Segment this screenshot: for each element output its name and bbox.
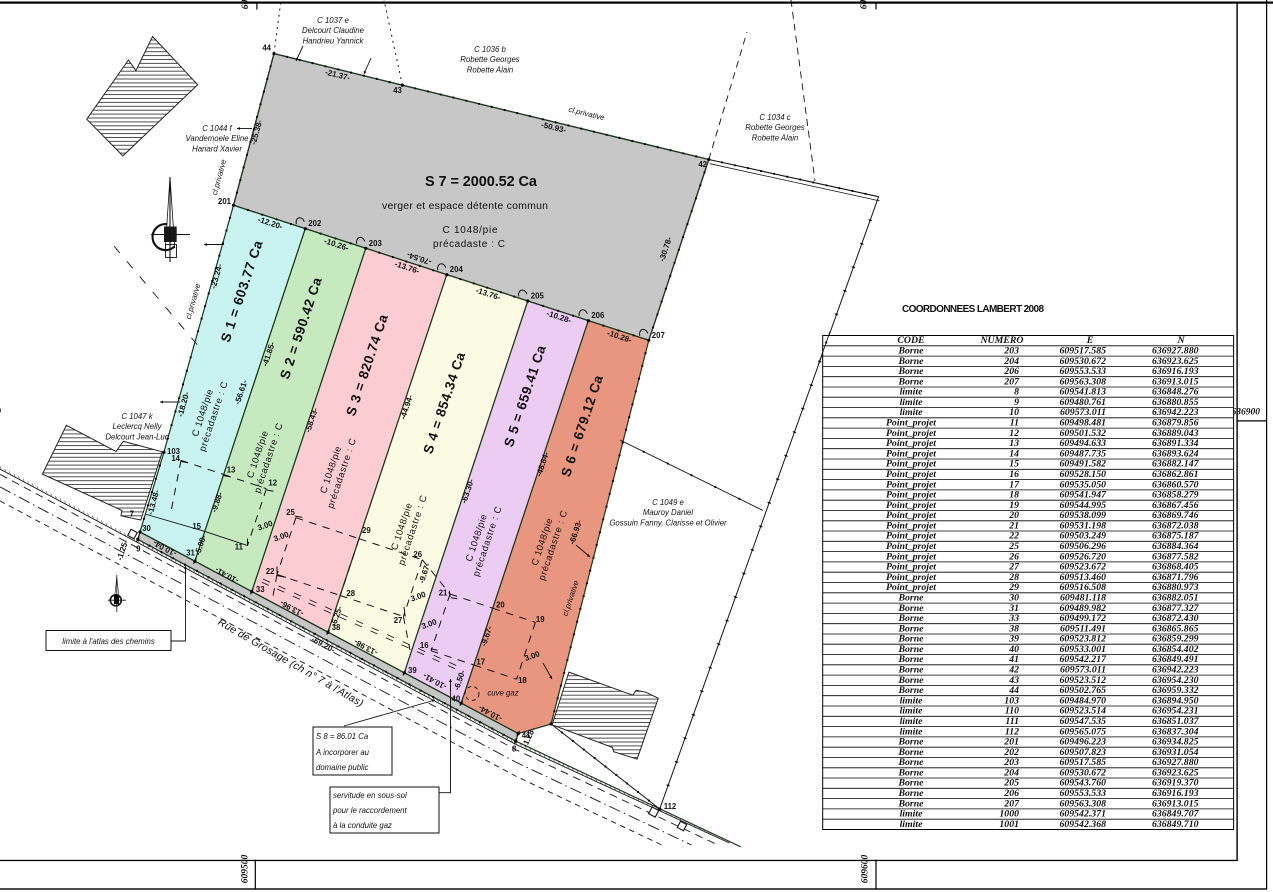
svg-text:28: 28 (346, 589, 355, 598)
svg-text:43: 43 (393, 86, 402, 95)
svg-text:cuve gaz: cuve gaz (487, 689, 518, 698)
svg-text:limite à l'atlas des chemins: limite à l'atlas des chemins (62, 637, 155, 646)
svg-text:Hanard Xavier: Hanard Xavier (192, 144, 242, 153)
svg-text:609500: 609500 (241, 855, 251, 884)
svg-text:C 1044 f: C 1044 f (202, 124, 232, 133)
svg-text:Robette Alain: Robette Alain (752, 133, 799, 142)
svg-text:201: 201 (218, 197, 232, 206)
svg-text:205: 205 (531, 292, 545, 301)
svg-text:18: 18 (518, 676, 527, 685)
svg-text:636849.710: 636849.710 (1152, 819, 1199, 830)
svg-text:30: 30 (142, 524, 151, 533)
svg-text:14: 14 (171, 454, 180, 463)
svg-text:26: 26 (413, 550, 422, 559)
svg-text:20: 20 (496, 600, 505, 609)
svg-text:pour le raccordement: pour le raccordement (332, 806, 408, 815)
svg-text:1001: 1001 (999, 819, 1019, 830)
svg-text:servitude en sous-sol: servitude en sous-sol (333, 791, 407, 800)
svg-text:42: 42 (698, 160, 707, 169)
svg-text:112: 112 (664, 802, 677, 811)
svg-text:207: 207 (652, 331, 665, 340)
svg-text:206: 206 (591, 311, 605, 320)
svg-text:12: 12 (268, 479, 277, 488)
svg-text:17: 17 (476, 658, 485, 667)
svg-text:202: 202 (308, 219, 322, 228)
svg-text:A incorporer au: A incorporer au (315, 748, 370, 757)
svg-text:9: 9 (136, 545, 141, 554)
svg-text:7: 7 (130, 510, 134, 519)
svg-text:Handrieu Yannick: Handrieu Yannick (303, 36, 365, 45)
svg-text:C 1048/pie: C 1048/pie (443, 225, 498, 236)
svg-text:8: 8 (512, 745, 517, 754)
svg-text:Delcourt Jean-Luc: Delcourt Jean-Luc (105, 432, 168, 441)
svg-text:Leclercq Nelly: Leclercq Nelly (113, 422, 163, 431)
svg-text:22: 22 (266, 567, 275, 576)
svg-text:Gossuin Fanny, Clarisse et Oli: Gossuin Fanny, Clarisse et Olivier (609, 518, 727, 527)
svg-text:39: 39 (408, 666, 417, 675)
svg-text:C 1037 e: C 1037 e (317, 16, 349, 25)
svg-text:609500: 609500 (241, 0, 251, 9)
svg-text:13: 13 (227, 466, 236, 475)
svg-text:33: 33 (256, 585, 265, 594)
svg-text:C 1036 b: C 1036 b (474, 45, 506, 54)
svg-text:16: 16 (420, 641, 429, 650)
svg-text:C 1049 e: C 1049 e (652, 498, 684, 507)
svg-text:21: 21 (439, 589, 448, 598)
svg-text:Delcourt Claudine: Delcourt Claudine (302, 26, 365, 35)
svg-text:limite: limite (900, 819, 924, 830)
svg-text:Robette Alain: Robette Alain (467, 65, 514, 74)
svg-text:précadaste : C: précadaste : C (433, 239, 505, 250)
svg-text:S 7 = 2000.52 Ca: S 7 = 2000.52 Ca (425, 174, 538, 190)
svg-text:S 8 = 86.01 Ca: S 8 = 86.01 Ca (316, 732, 369, 741)
svg-text:11: 11 (235, 543, 244, 552)
svg-text:Robette Georges: Robette Georges (745, 123, 804, 132)
svg-text:609600: 609600 (860, 0, 870, 9)
svg-text:29: 29 (362, 526, 371, 535)
svg-text:verger et espace détente commu: verger et espace détente commun (382, 200, 548, 212)
svg-text:609542.368: 609542.368 (1059, 819, 1106, 830)
svg-text:636900: 636900 (1232, 408, 1261, 418)
svg-text:C 1034 c: C 1034 c (759, 113, 790, 122)
svg-text:204: 204 (450, 265, 464, 274)
svg-text:Mauroy Daniel: Mauroy Daniel (643, 508, 694, 517)
svg-text:27: 27 (394, 616, 403, 625)
svg-text:Robette Georges: Robette Georges (460, 55, 519, 64)
svg-text:C 1047 k: C 1047 k (121, 412, 153, 421)
svg-text:44: 44 (262, 44, 271, 53)
svg-text:15: 15 (192, 522, 201, 531)
svg-text:203: 203 (369, 239, 383, 248)
svg-text:25: 25 (286, 508, 295, 517)
svg-text:Vandemoele Eline: Vandemoele Eline (186, 134, 250, 143)
svg-text:19: 19 (536, 615, 545, 624)
svg-text:à la conduite gaz: à la conduite gaz (333, 821, 392, 830)
svg-text:609600: 609600 (861, 855, 871, 884)
svg-text:domaine public: domaine public (316, 763, 369, 772)
svg-text:COORDONNEES LAMBERT 2008: COORDONNEES LAMBERT 2008 (902, 304, 1044, 315)
svg-text:40: 40 (452, 695, 461, 704)
